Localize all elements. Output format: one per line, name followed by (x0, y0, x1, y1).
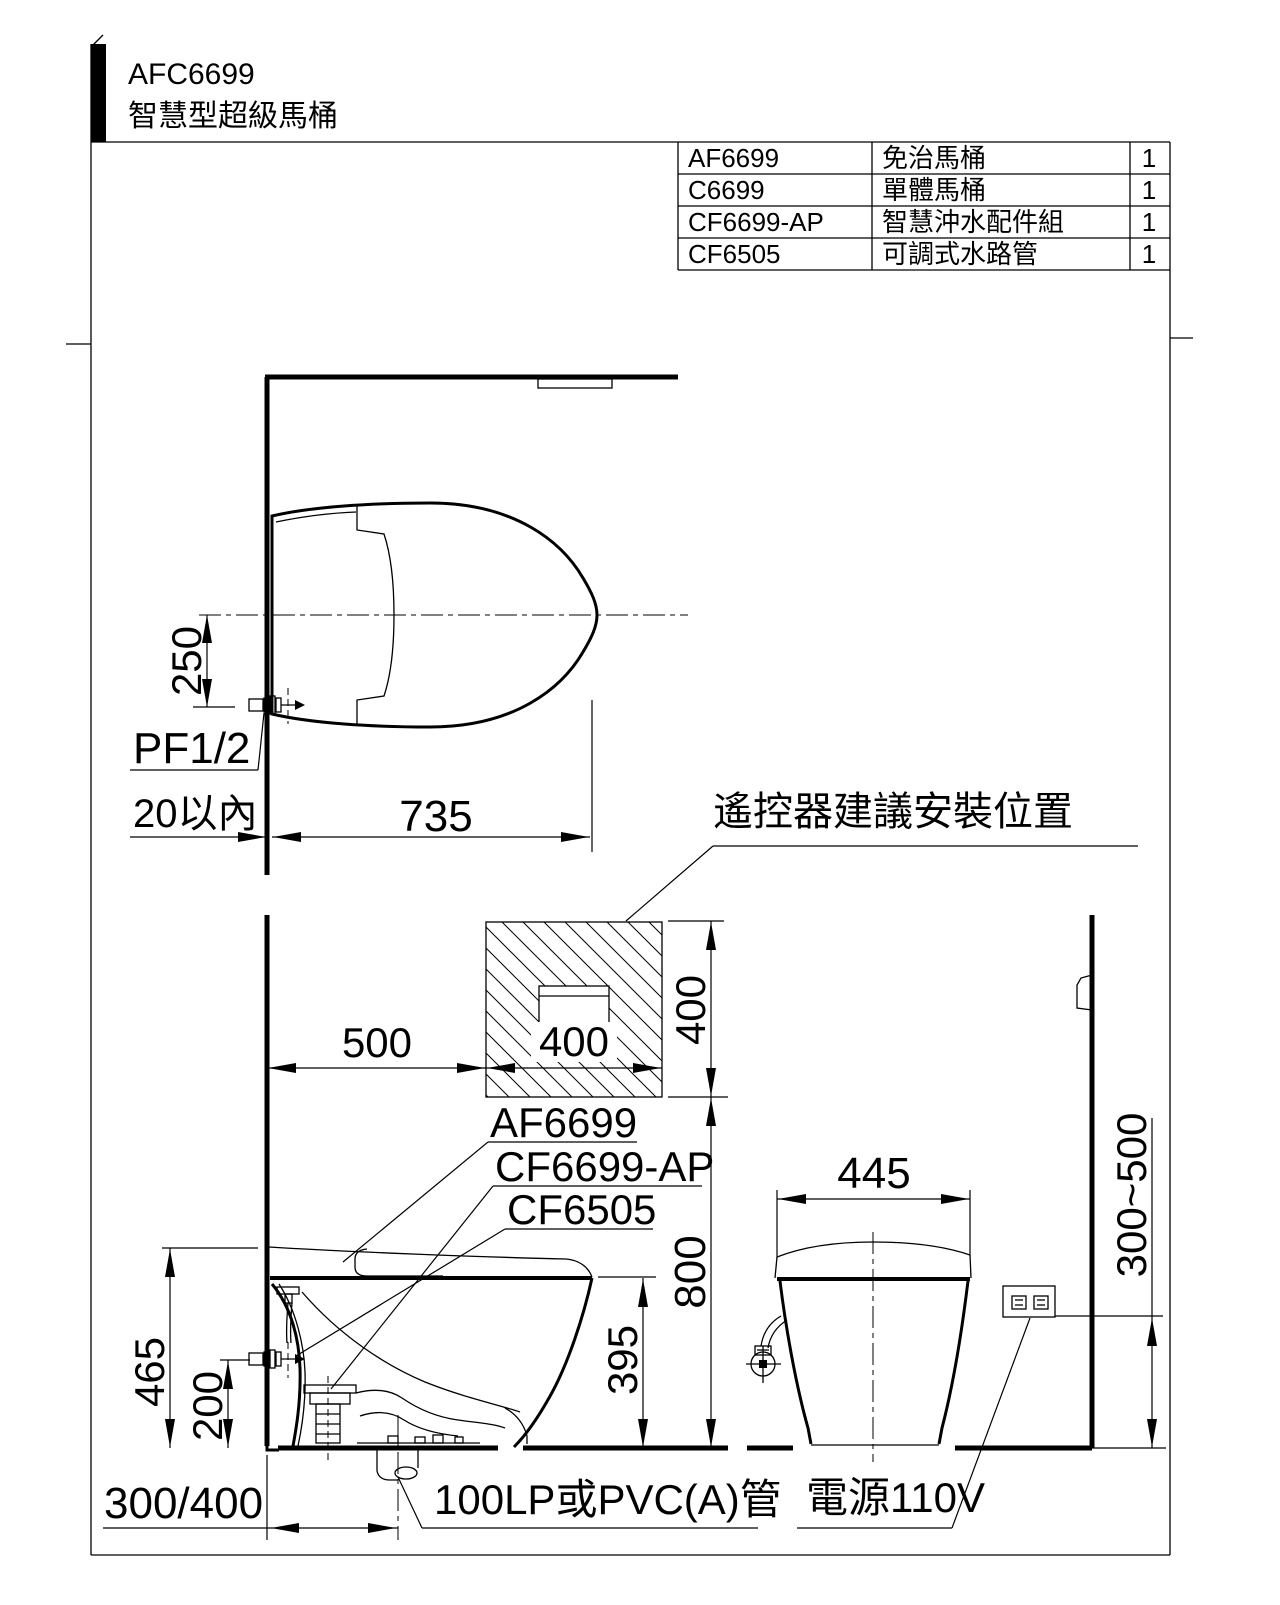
part-name: 可調式水路管 (882, 239, 1038, 269)
dim-465-label: 465 (126, 1337, 173, 1407)
part-qty: 1 (1142, 143, 1156, 173)
dim-400h-label: 400 (667, 975, 714, 1045)
parts-table: AF6699 免治馬桶 1 C6699 單體馬桶 1 CF6699-AP 智慧沖… (678, 142, 1170, 270)
remote-label: 遙控器建議安裝位置 (713, 790, 1073, 834)
part-name: 單體馬桶 (882, 175, 986, 205)
dim-400-height: 400 (667, 921, 728, 1097)
table-row: CF6505 可調式水路管 1 (688, 239, 1156, 269)
dim-wall-gap-label: 20以內 (133, 792, 258, 836)
dim-395: 395 (598, 1277, 656, 1448)
side-body-front (514, 1278, 592, 1447)
inlet-label: PF1/2 (133, 724, 250, 773)
toilet-installation-drawing: AFC6699 智慧型超級馬桶 AF6699 免治馬桶 1 C6699 單體馬桶… (0, 0, 1280, 1600)
dim-200-label: 200 (184, 1371, 231, 1441)
label-drain-pipe: 100LP或PVC(A)管 (398, 1476, 782, 1528)
table-row: CF6699-AP 智慧沖水配件組 1 (688, 207, 1156, 237)
side-inlet-valve (249, 1342, 305, 1378)
power-label: 電源110V (806, 1474, 985, 1521)
seat-label: AF6699 (490, 1099, 637, 1146)
part-name: 智慧沖水配件組 (882, 207, 1064, 237)
table-row: C6699 單體馬桶 1 (688, 175, 1156, 205)
label-inlet-pf12: PF1/2 (130, 713, 264, 773)
dim-500: 500 (267, 1019, 486, 1073)
flush-kit-label: CF6699-AP (495, 1143, 714, 1190)
rear-body-right (939, 1281, 968, 1444)
dim-400w-label: 400 (539, 1018, 609, 1065)
power-outlet (1003, 1286, 1163, 1317)
remote-zone: 遙控器建議安裝位置 400 500 400 (267, 790, 1138, 1097)
part-model: AF6699 (688, 143, 779, 173)
dim-800-label: 800 (666, 1235, 715, 1308)
page-title-name: 智慧型超級馬桶 (128, 100, 338, 133)
dim-rough-in: 300/400 (103, 1455, 398, 1540)
table-row: AF6699 免治馬桶 1 (688, 143, 1156, 173)
dim-wall-gap: 20以內 (130, 792, 267, 842)
part-qty: 1 (1142, 239, 1156, 269)
rear-body-left (780, 1281, 811, 1444)
title-block-bar (91, 44, 106, 142)
part-model: CF6699-AP (688, 207, 824, 237)
plan-view: 250 PF1/2 20以內 735 (130, 377, 688, 875)
dim-200: 200 (184, 1360, 250, 1448)
dim-outlet-height-label: 300~500 (1108, 1113, 1155, 1278)
part-qty: 1 (1142, 175, 1156, 205)
part-name: 免治馬桶 (882, 143, 986, 173)
rear-view: 445 300~500 電源110V (746, 915, 1166, 1528)
dim-445-label: 445 (837, 1149, 910, 1198)
dim-395-label: 395 (599, 1325, 646, 1395)
dim-outlet-height: 300~500 (1092, 1113, 1166, 1448)
dim-rough-in-label: 300/400 (104, 1479, 263, 1528)
drain-label: 100LP或PVC(A)管 (434, 1476, 782, 1523)
water-pipe-label: CF6505 (507, 1186, 656, 1233)
dim-500-label: 500 (342, 1019, 412, 1066)
side-tank-top (269, 1247, 592, 1277)
drain-pipe (377, 1415, 418, 1540)
dim-250-label: 250 (163, 626, 210, 696)
part-model: CF6505 (688, 239, 781, 269)
part-model: C6699 (688, 175, 765, 205)
dim-735-label: 735 (399, 792, 472, 841)
page-title-model: AFC6699 (128, 58, 255, 91)
label-power: 電源110V (797, 1318, 1030, 1528)
plan-wall-notch (538, 379, 612, 388)
part-qty: 1 (1142, 207, 1156, 237)
side-internals (272, 1284, 527, 1463)
rear-supply-hose (746, 1316, 787, 1383)
dim-250: 250 (163, 615, 235, 707)
label-flush-kit: CF6699-AP (331, 1143, 714, 1389)
drawing-sheet: AFC6699 智慧型超級馬桶 AF6699 免治馬桶 1 C6699 單體馬桶… (0, 0, 1280, 1600)
